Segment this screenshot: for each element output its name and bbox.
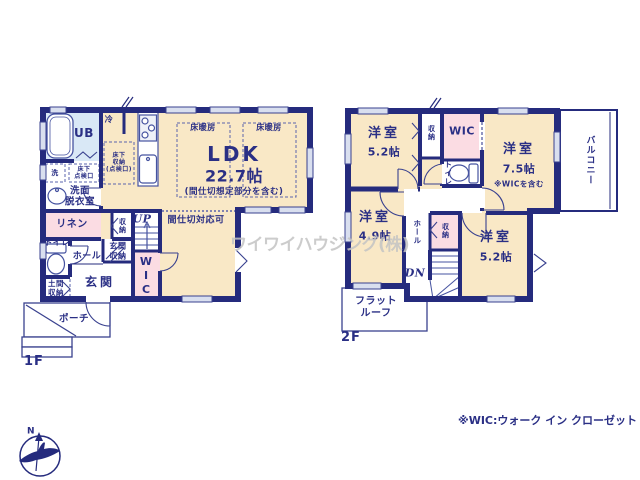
wic-f2-label: WIC <box>449 124 475 137</box>
porch-structure <box>22 303 110 357</box>
balcony-label: バルコニー <box>585 135 594 185</box>
closet-f1-label: 収納 <box>119 218 126 234</box>
ldk-note-label: (間仕切想定部分を含む) <box>185 187 284 197</box>
compass-north-label: N <box>27 427 35 438</box>
floorplan-page: UB 冷 洗 床下 点検口 床下 収納 (点検口) 洗面 脱衣室 リネン トイレ… <box>0 0 640 480</box>
kitchen-counter <box>138 112 158 186</box>
bath-tub <box>47 114 73 158</box>
bath-label: UB <box>74 126 94 140</box>
flat-roof-label: フラット ルーフ <box>355 296 397 320</box>
washstand <box>48 188 66 204</box>
room-nw-size: 5.2帖 <box>368 145 401 158</box>
f1-floor-label: 1F <box>24 354 44 369</box>
f2-floor-label: 2F <box>341 330 361 345</box>
floor-heating-right-label: 床暖房 <box>256 123 282 133</box>
washroom-label: 洗面 脱衣室 <box>65 186 95 209</box>
fridge-label: 冷 <box>105 115 114 125</box>
underfloor-hatch-label: 床下 点検口 <box>74 166 94 180</box>
partition-note-label: 間仕切対応可 <box>167 216 224 227</box>
room-nw-name: 洋室 <box>368 126 400 142</box>
entrance-label: 玄関 <box>85 275 115 289</box>
room-ne-size: 7.5帖 <box>503 162 536 175</box>
watermark: ワイワイハウジング(株) <box>230 230 409 255</box>
wic-legend: ※WIC:ウォーク イン クローゼット <box>458 412 637 428</box>
porch-label: ポーチ <box>59 313 89 324</box>
stairs-down-label: DN <box>405 266 426 279</box>
doma-storage-label: 土間 収納 <box>48 279 64 297</box>
wic-f1-label: WIC <box>141 255 152 297</box>
room-ne-name: 洋室 <box>503 142 535 158</box>
entrance-storage-label: 玄関 収納 <box>110 241 127 260</box>
hall-f2-label: ホール <box>413 219 421 245</box>
closet-mid-label: 収納 <box>442 223 449 239</box>
room-sw-name: 洋室 <box>359 210 391 226</box>
toilet-f1-label: トイレ <box>44 238 70 248</box>
linen-label: リネン <box>56 219 88 231</box>
hall-f1-label: ホール <box>73 252 102 263</box>
floor-heating-left-label: 床暖房 <box>190 123 216 133</box>
toilet-f2 <box>450 164 479 183</box>
washer-label: 洗 <box>51 169 59 177</box>
closet-top-label: 収納 <box>428 125 435 141</box>
room-se-size: 5.2帖 <box>480 250 513 263</box>
room-se-name: 洋室 <box>480 230 512 246</box>
toilet-f2-label: トイレ <box>444 160 452 186</box>
compass-icon <box>19 432 60 476</box>
ldk-name-label: LDK <box>207 142 261 166</box>
underfloor-storage-label: 床下 収納 (点検口) <box>106 152 132 174</box>
ldk-size-label: 22.7帖 <box>205 166 263 185</box>
room-ne-note: ※WICを含む <box>494 180 544 189</box>
stairs-up-label: UP <box>133 212 152 225</box>
toilet-f1 <box>46 244 66 274</box>
